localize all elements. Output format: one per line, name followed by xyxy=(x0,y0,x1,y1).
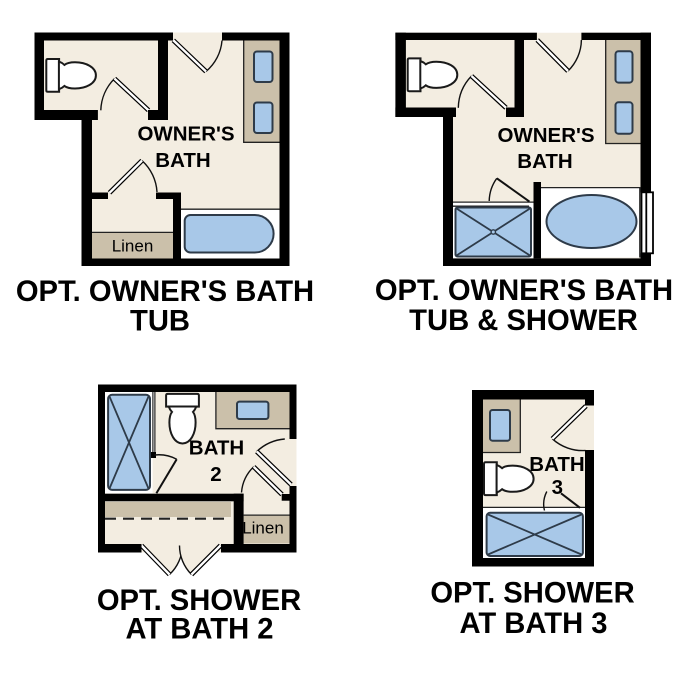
svg-text:2: 2 xyxy=(210,463,221,486)
svg-text:OPT. OWNER'S BATH: OPT. OWNER'S BATH xyxy=(375,275,673,307)
svg-text:TUB & SHOWER: TUB & SHOWER xyxy=(409,305,638,337)
svg-text:BATH: BATH xyxy=(517,150,572,173)
svg-text:OPT. SHOWER: OPT. SHOWER xyxy=(97,585,301,617)
svg-text:Linen: Linen xyxy=(112,237,154,256)
svg-text:TUB: TUB xyxy=(130,306,190,338)
svg-text:3: 3 xyxy=(552,476,563,499)
svg-text:AT BATH 2: AT BATH 2 xyxy=(125,614,273,646)
svg-text:BATH: BATH xyxy=(189,437,244,460)
svg-text:BATH: BATH xyxy=(529,453,584,476)
svg-text:OWNER'S: OWNER'S xyxy=(497,124,594,147)
svg-text:OWNER'S: OWNER'S xyxy=(137,123,234,146)
svg-text:BATH: BATH xyxy=(155,149,210,172)
svg-text:OPT. SHOWER: OPT. SHOWER xyxy=(430,578,634,610)
svg-text:OPT. OWNER'S BATH: OPT. OWNER'S BATH xyxy=(16,276,314,308)
svg-text:Linen: Linen xyxy=(242,519,284,538)
svg-text:AT BATH 3: AT BATH 3 xyxy=(459,608,607,640)
